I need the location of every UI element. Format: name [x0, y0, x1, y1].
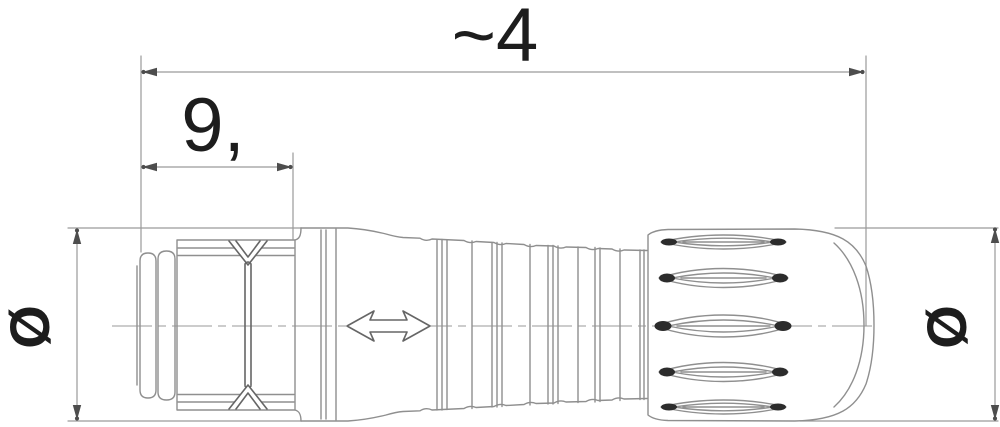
grip-slot [655, 315, 792, 337]
dimension-overall-length: ~4 [141, 0, 864, 78]
main-body [295, 228, 647, 421]
dim-arrowhead-dot [75, 228, 79, 232]
grip-slot-tip [659, 368, 675, 377]
grip-slot-tip [770, 239, 786, 246]
grip-slots [655, 235, 792, 414]
front-sleeve-outline [177, 240, 295, 410]
grip-end-inner-contour [834, 243, 864, 407]
diameter-right-label: Ø [916, 305, 979, 349]
body-front-ribs [321, 229, 336, 420]
dim-arrowhead-dot [141, 165, 145, 169]
dim-arrowhead-dot [75, 416, 79, 420]
cable-grip [648, 229, 874, 421]
dim-arrowhead-dot [141, 70, 145, 74]
dimension-front-length: 9, [141, 83, 292, 171]
grip-slot-tip [661, 404, 677, 411]
body-step [295, 228, 301, 421]
v-groove-bottom-mask [229, 384, 267, 409]
grip-slot-tip [772, 274, 788, 283]
push-pull-arrow-icon [347, 311, 430, 341]
grip-slot [659, 363, 788, 382]
dim-arrowhead-dot [993, 416, 997, 420]
grip-slot [659, 269, 788, 288]
grip-slot [661, 235, 786, 249]
dim-arrowhead-dot [993, 227, 997, 231]
grip-slot [661, 400, 786, 414]
dimension-diameter-right: Ø [916, 227, 1000, 420]
front-length-label: 9, [181, 83, 244, 168]
grip-slot-tip [659, 274, 675, 283]
grip-slot-tip [772, 368, 788, 377]
grip-slot-tip [770, 404, 786, 411]
grip-slot-tip [655, 321, 672, 331]
overall-length-label: ~4 [452, 0, 539, 78]
connector-drawing-svg: ~4 9, Ø Ø [0, 0, 1000, 427]
dim-arrowhead-dot [860, 70, 864, 74]
diameter-left-label: Ø [0, 305, 62, 349]
v-groove-channel [245, 262, 251, 388]
grip-slot-tip [775, 321, 792, 331]
taper-ribs [437, 240, 644, 411]
dim-arrowhead-dot [288, 165, 292, 169]
front-sleeve [177, 240, 295, 410]
front-sleeve-inner-lines [178, 248, 294, 402]
technical-drawing-canvas: ~4 9, Ø Ø [0, 0, 1000, 427]
dimension-diameter-left: Ø [0, 228, 81, 420]
grip-slot-tip [661, 239, 677, 246]
